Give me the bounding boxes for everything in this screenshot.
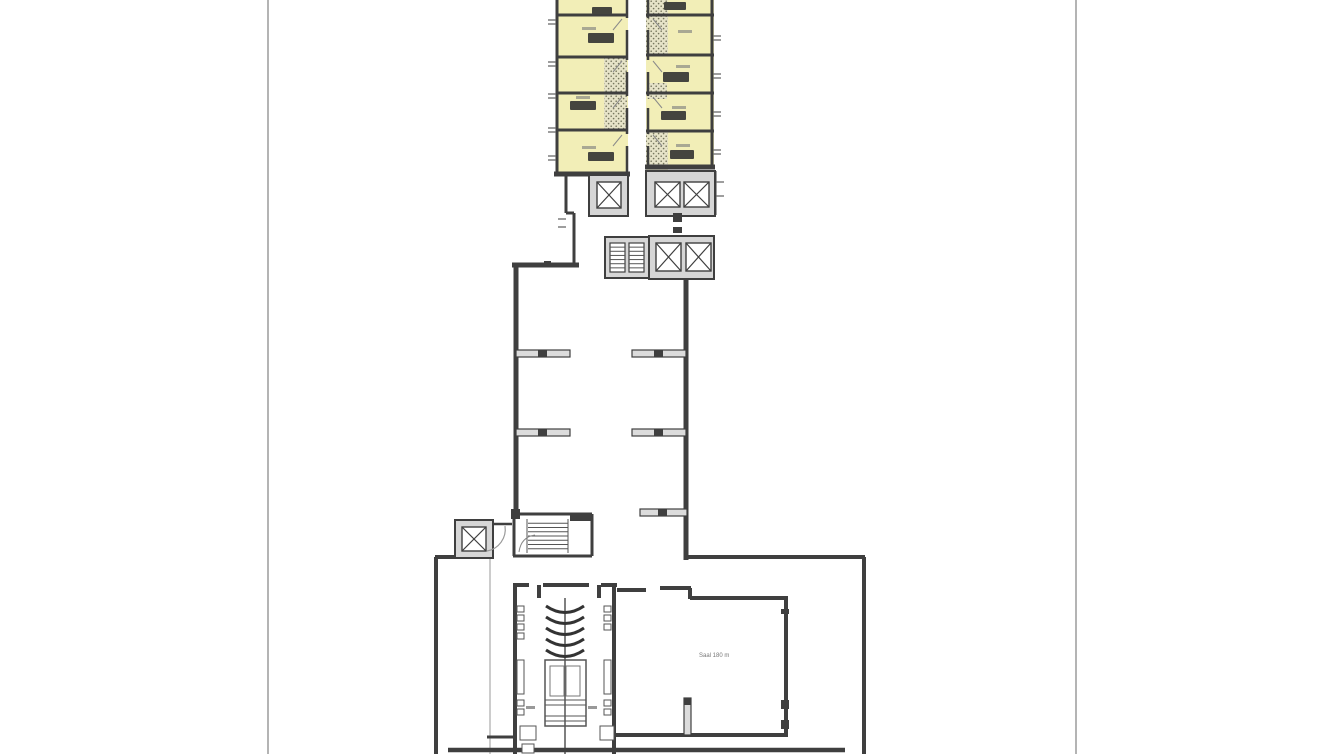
room-label-mark <box>676 144 690 147</box>
escalator-truss <box>550 666 564 696</box>
wall-niche <box>517 709 524 715</box>
column <box>544 261 551 267</box>
bed-symbol <box>664 2 686 10</box>
stub-cap <box>538 350 547 357</box>
wall-niche <box>517 615 524 621</box>
stair-landing <box>570 513 591 521</box>
bed-symbol <box>670 150 694 159</box>
stub-cap <box>538 429 547 436</box>
wall-niche <box>604 624 611 630</box>
bed-symbol <box>663 72 689 82</box>
floor-plan-page: Saal 180 m <box>0 0 1342 754</box>
floor-plan-svg: Saal 180 m <box>0 0 1342 754</box>
wall-niche <box>517 633 524 639</box>
room-label-mark <box>678 30 692 33</box>
wall-niche <box>604 615 611 621</box>
wall-tick <box>781 700 789 709</box>
hall-area-label: Saal 180 m <box>699 653 729 659</box>
wall-niche <box>604 700 611 706</box>
room-label-mark <box>582 146 596 149</box>
wall-niche <box>517 606 524 612</box>
stub-cap <box>654 429 663 436</box>
door-leaf <box>537 585 541 598</box>
column <box>673 213 682 222</box>
door-leaf <box>597 585 601 598</box>
tiny-label-mark <box>588 706 597 709</box>
wall-tick <box>781 609 789 614</box>
bed-symbol <box>570 101 596 110</box>
wall-niche <box>604 709 611 715</box>
bed-symbol <box>588 33 614 43</box>
column <box>673 227 682 233</box>
bath-pod-right-bottom <box>646 132 668 170</box>
wall-end-cap <box>511 509 520 519</box>
wall-niche <box>604 660 611 694</box>
room-label-mark <box>576 96 590 99</box>
escalator-truss <box>566 666 580 696</box>
room-label-mark <box>676 65 690 68</box>
wall-niche <box>520 726 536 740</box>
wall-niche <box>517 700 524 706</box>
wall-niche <box>522 744 534 753</box>
wall-niche <box>600 726 614 740</box>
wall-niche <box>604 606 611 612</box>
wall-tick <box>781 720 789 729</box>
stub-cap <box>684 698 691 705</box>
floor-plan-layers: Saal 180 m <box>268 0 1076 754</box>
stub-cap <box>654 350 663 357</box>
tiny-label-mark <box>526 706 535 709</box>
stub-cap <box>658 509 667 516</box>
wall-niche <box>517 660 524 694</box>
bed-symbol <box>661 111 686 120</box>
bed-symbol <box>588 152 614 161</box>
wall-niche <box>517 624 524 630</box>
room-label-mark <box>582 27 596 30</box>
room-label-mark <box>672 106 686 109</box>
bed-symbol <box>592 7 612 14</box>
bath-pod-right-mid <box>647 83 667 99</box>
